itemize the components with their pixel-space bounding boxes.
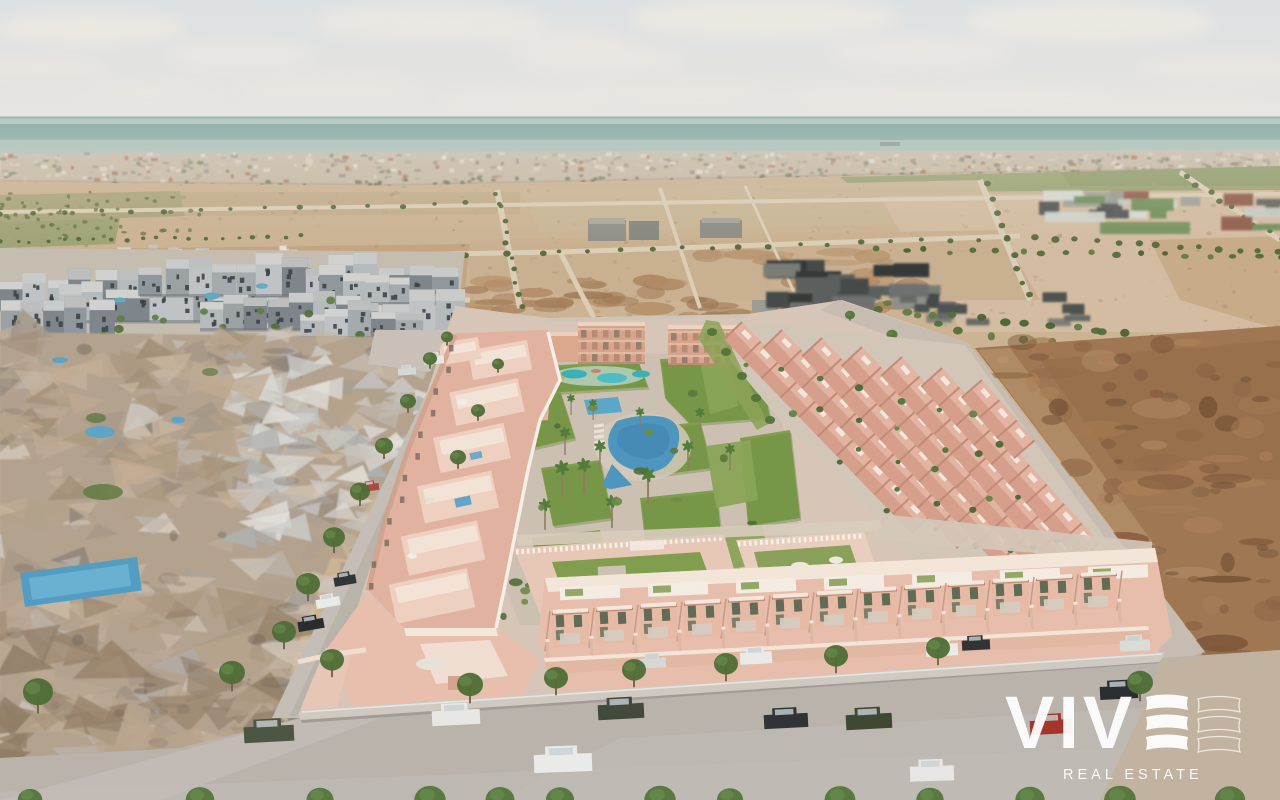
svg-text:REAL ESTATE: REAL ESTATE [1063,767,1203,783]
svg-text:VIV: VIV [1005,681,1136,764]
